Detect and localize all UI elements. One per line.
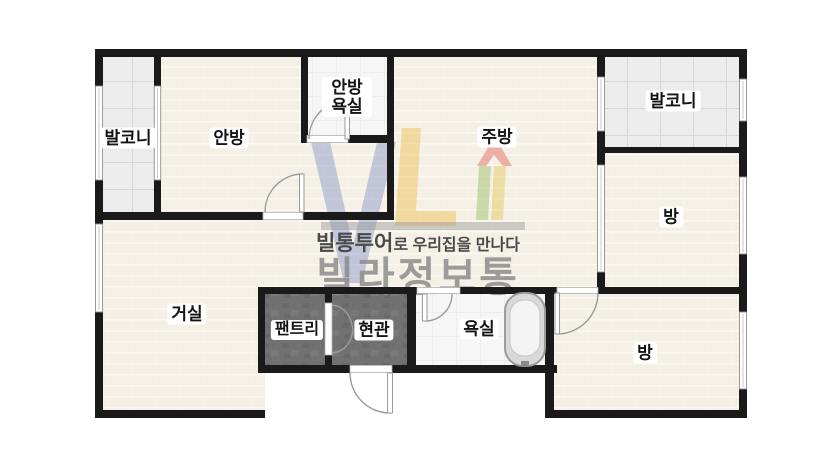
door-leaf-entrance	[388, 373, 393, 413]
label-living: 거실	[167, 303, 206, 324]
label-pantry: 팬트리	[271, 320, 323, 340]
pantry-door-jamb	[325, 303, 332, 355]
window-balcony-right	[740, 79, 747, 121]
bathtub	[505, 293, 545, 367]
opening-kitchen-room	[598, 165, 605, 272]
label-master-bedroom: 안방	[209, 127, 248, 148]
label-master-bath-line1: 안방	[324, 78, 370, 97]
label-bath: 욕실	[459, 318, 498, 339]
label-kitchen: 주방	[477, 126, 516, 147]
logo-base-bar	[321, 222, 525, 230]
window-kitchen-balcony	[598, 77, 605, 131]
threshold-master-bath	[307, 136, 348, 143]
exterior-notch	[265, 373, 548, 418]
bathtub-drain	[521, 361, 529, 367]
door-leaf-room-bottom	[555, 293, 560, 334]
window-living-room	[96, 224, 103, 312]
window-room-top-right	[740, 177, 747, 254]
window-room-bottom-right	[740, 312, 747, 389]
label-entrance: 현관	[354, 319, 393, 340]
door-leaf-master-bedroom	[300, 174, 305, 212]
label-balcony-left: 발코니	[101, 127, 156, 148]
threshold-entrance	[350, 366, 392, 373]
door-leaf-bath	[423, 294, 428, 321]
threshold-master-bedroom	[263, 213, 303, 220]
floor-plan-drawing: 빌통투어로 우리집을 만나다 빌라정보통	[0, 0, 840, 472]
label-room-bottom-right: 방	[633, 342, 657, 363]
floor-plan-page: 빌통투어로 우리집을 만나다 빌라정보통	[0, 0, 840, 472]
threshold-room-bottom	[557, 288, 598, 294]
label-master-bath: 안방 욕실	[322, 77, 372, 117]
label-master-bath-line2: 욕실	[324, 97, 370, 116]
threshold-bath	[417, 288, 460, 294]
label-balcony-right: 발코니	[646, 90, 701, 111]
label-room-top-right: 방	[659, 206, 683, 227]
